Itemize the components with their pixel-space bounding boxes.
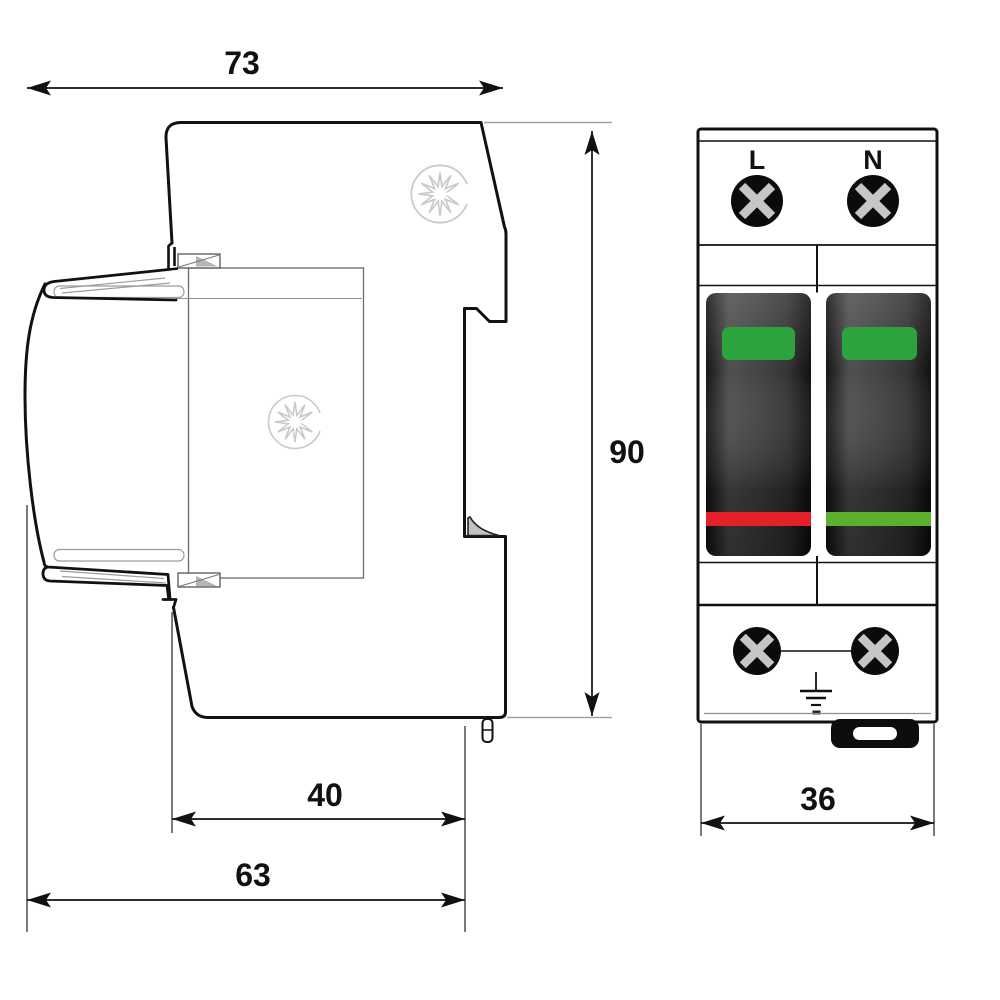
release-pin (483, 719, 493, 742)
dim-value-73: 73 (224, 45, 260, 81)
module-insert-outline (189, 268, 364, 578)
din-latch-tab (831, 719, 919, 748)
sunburst-logo-icon (269, 396, 326, 449)
rail-section-detail-top (178, 254, 220, 268)
dimension-90: 90 (585, 131, 645, 716)
drawing-svg: L N (0, 0, 1000, 1000)
phillips-screw-icon (847, 175, 899, 227)
dim-value-63: 63 (235, 857, 271, 893)
latch-tooth (468, 517, 499, 536)
side-view (25, 123, 612, 743)
clip-hook-top (169, 243, 179, 270)
indicator-window (722, 327, 795, 360)
phillips-screw-icon (851, 627, 899, 675)
front-view: L N (698, 129, 937, 748)
rail-slot-bottom (54, 550, 184, 562)
dimension-40: 40 (172, 612, 465, 932)
clip-spring-edge (25, 284, 45, 562)
module-left (706, 293, 811, 556)
status-strip-red (706, 512, 811, 526)
dimension-drawing: L N (0, 0, 1000, 1000)
clip-arm-bottom (43, 562, 176, 608)
status-strip-green (826, 512, 931, 526)
terminal-label-L: L (749, 145, 766, 175)
phillips-screw-icon (733, 627, 781, 675)
sunburst-logo-icon (411, 165, 472, 222)
clip-arm-hatching (60, 278, 170, 583)
enclosure-profile (166, 123, 506, 718)
indicator-window (842, 327, 917, 360)
rail-section-detail-bottom (178, 573, 220, 587)
dim-value-36: 36 (800, 781, 836, 817)
module-right (826, 293, 931, 556)
dim-value-90: 90 (609, 434, 645, 470)
phillips-screw-icon (731, 175, 783, 227)
terminal-label-N: N (863, 145, 883, 175)
dimension-73: 73 (27, 45, 503, 96)
dim-value-40: 40 (307, 777, 343, 813)
